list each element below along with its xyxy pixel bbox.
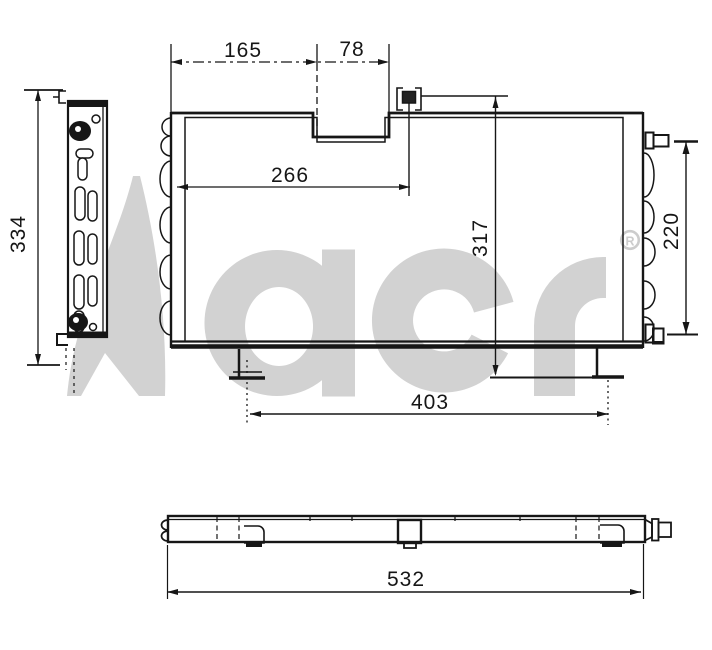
svg-text:317: 317 <box>469 219 492 257</box>
svg-text:R: R <box>625 235 634 249</box>
svg-text:220: 220 <box>660 212 683 250</box>
svg-text:165: 165 <box>224 39 262 62</box>
svg-text:403: 403 <box>411 391 449 414</box>
svg-text:334: 334 <box>7 215 30 253</box>
svg-text:266: 266 <box>271 164 309 187</box>
svg-text:78: 78 <box>339 38 364 61</box>
svg-text:532: 532 <box>387 568 425 591</box>
